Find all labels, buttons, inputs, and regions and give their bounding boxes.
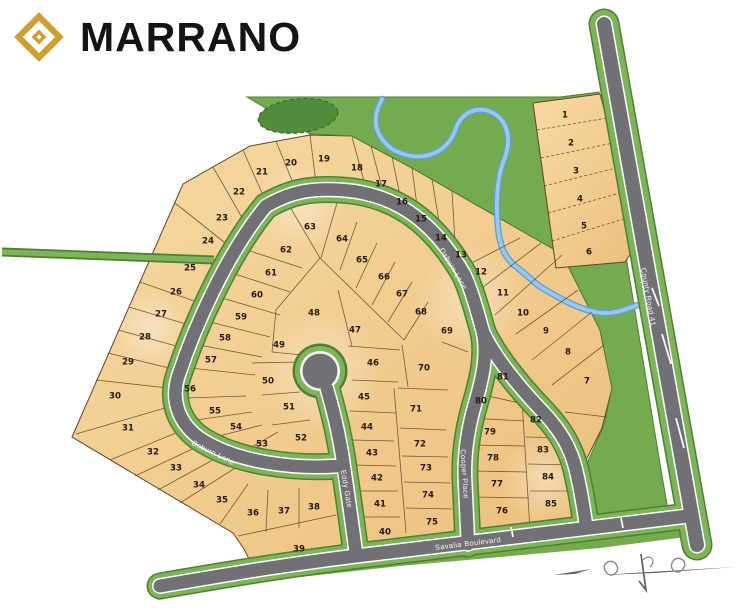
- lot-78-label: 78: [487, 454, 499, 464]
- lot-15-label: 15: [415, 215, 427, 225]
- lot-42-label: 42: [371, 474, 383, 484]
- lot-57-label: 57: [205, 356, 217, 366]
- lot-69-label: 69: [441, 327, 453, 337]
- lot-45-label: 45: [358, 393, 370, 403]
- lot-1-label: 1: [562, 111, 568, 121]
- lot-36-label: 36: [247, 509, 259, 519]
- lot-80-label: 80: [475, 397, 487, 407]
- lot-75-label: 75: [426, 518, 438, 528]
- lot-4-label: 4: [577, 195, 583, 205]
- lot-50-label: 50: [262, 377, 274, 387]
- site-plan-map: Osburn LaneOsburn LaneEddy GateCooper Pl…: [0, 0, 736, 611]
- lot-64-label: 64: [336, 235, 348, 245]
- lot-19-label: 19: [318, 155, 330, 165]
- cul-de-sac: [303, 354, 338, 389]
- lot-47-label: 47: [349, 326, 361, 336]
- lot-79-label: 79: [484, 428, 496, 438]
- lot-32-label: 32: [147, 448, 159, 458]
- lot-22-label: 22: [233, 188, 245, 198]
- lot-51-label: 51: [283, 403, 295, 413]
- lot-82-label: 82: [530, 416, 542, 426]
- lot-83-label: 83: [537, 446, 549, 456]
- lot-25-label: 25: [184, 264, 196, 274]
- site-plan-page: MARRANO Osburn LaneOsburn LaneEddy GateC…: [0, 0, 736, 611]
- lot-56-label: 56: [184, 385, 196, 395]
- lot-55-label: 55: [209, 407, 221, 417]
- lot-40-label: 40: [379, 528, 391, 538]
- lot-28-label: 28: [139, 333, 151, 343]
- lot-65-label: 65: [356, 256, 368, 266]
- lot-81-label: 81: [497, 373, 509, 383]
- lot-31-label: 31: [122, 424, 134, 434]
- lot-68-label: 68: [415, 308, 427, 318]
- lot-58-label: 58: [219, 334, 231, 344]
- lot-84-label: 84: [542, 473, 554, 483]
- lot-67-label: 67: [396, 290, 408, 300]
- lot-71-label: 71: [410, 405, 422, 415]
- lot-35-label: 35: [216, 496, 228, 506]
- lot-72-label: 72: [414, 440, 426, 450]
- lot-34-label: 34: [193, 481, 205, 491]
- lot-7-label: 7: [584, 377, 590, 387]
- lot-43-label: 43: [366, 449, 378, 459]
- lot-44-label: 44: [361, 423, 373, 433]
- lot-21-label: 21: [256, 168, 268, 178]
- lot-63-label: 63: [304, 223, 316, 233]
- lot-38-label: 38: [308, 503, 320, 513]
- lot-29-label: 29: [122, 358, 134, 368]
- lot-23-label: 23: [216, 214, 228, 224]
- lot-76-label: 76: [496, 507, 508, 517]
- lot-52-label: 52: [295, 434, 307, 444]
- lot-46-label: 46: [367, 359, 379, 369]
- lot-18-label: 18: [351, 164, 363, 174]
- lot-41-label: 41: [374, 500, 386, 510]
- brand-logo: MARRANO: [10, 6, 301, 68]
- lot-60-label: 60: [251, 291, 263, 301]
- lot-39-label: 39: [293, 545, 305, 555]
- lot-11-label: 11: [497, 289, 509, 299]
- lot-85-label: 85: [545, 500, 557, 510]
- lot-13-label: 13: [455, 251, 467, 261]
- lot-2-label: 2: [568, 139, 574, 149]
- lot-26-label: 26: [170, 288, 182, 298]
- lot-6-label: 6: [586, 248, 592, 258]
- lot-10-label: 10: [517, 309, 529, 319]
- brand-wordmark: MARRANO: [80, 17, 301, 58]
- lot-33-label: 33: [170, 464, 182, 474]
- lot-54-label: 54: [230, 423, 242, 433]
- lot-14-label: 14: [435, 234, 447, 244]
- lot-24-label: 24: [202, 237, 214, 247]
- lot-59-label: 59: [235, 313, 247, 323]
- north-arrow-ornament: [553, 554, 735, 590]
- lot-77-label: 77: [491, 480, 503, 490]
- lot-9-label: 9: [543, 327, 549, 337]
- lot-5-label: 5: [581, 222, 587, 232]
- lot-61-label: 61: [265, 269, 277, 279]
- lot-27-label: 27: [155, 310, 167, 320]
- lot-37-label: 37: [278, 507, 290, 517]
- lot-30-label: 30: [109, 392, 121, 402]
- lot-74-label: 74: [422, 491, 434, 501]
- lot-16-label: 16: [396, 198, 408, 208]
- lot-73-label: 73: [420, 464, 432, 474]
- lot-53-label: 53: [256, 440, 268, 450]
- marrano-logo-icon: [10, 6, 68, 68]
- lot-70-label: 70: [418, 364, 430, 374]
- lot-8-label: 8: [565, 348, 571, 358]
- lot-17-label: 17: [375, 180, 387, 190]
- lot-66-label: 66: [378, 273, 390, 283]
- lot-62-label: 62: [280, 246, 292, 256]
- lot-3-label: 3: [573, 167, 579, 177]
- lot-12-label: 12: [475, 268, 487, 278]
- lot-49-label: 49: [273, 341, 285, 351]
- lot-48-label: 48: [308, 309, 320, 319]
- lot-20-label: 20: [285, 159, 297, 169]
